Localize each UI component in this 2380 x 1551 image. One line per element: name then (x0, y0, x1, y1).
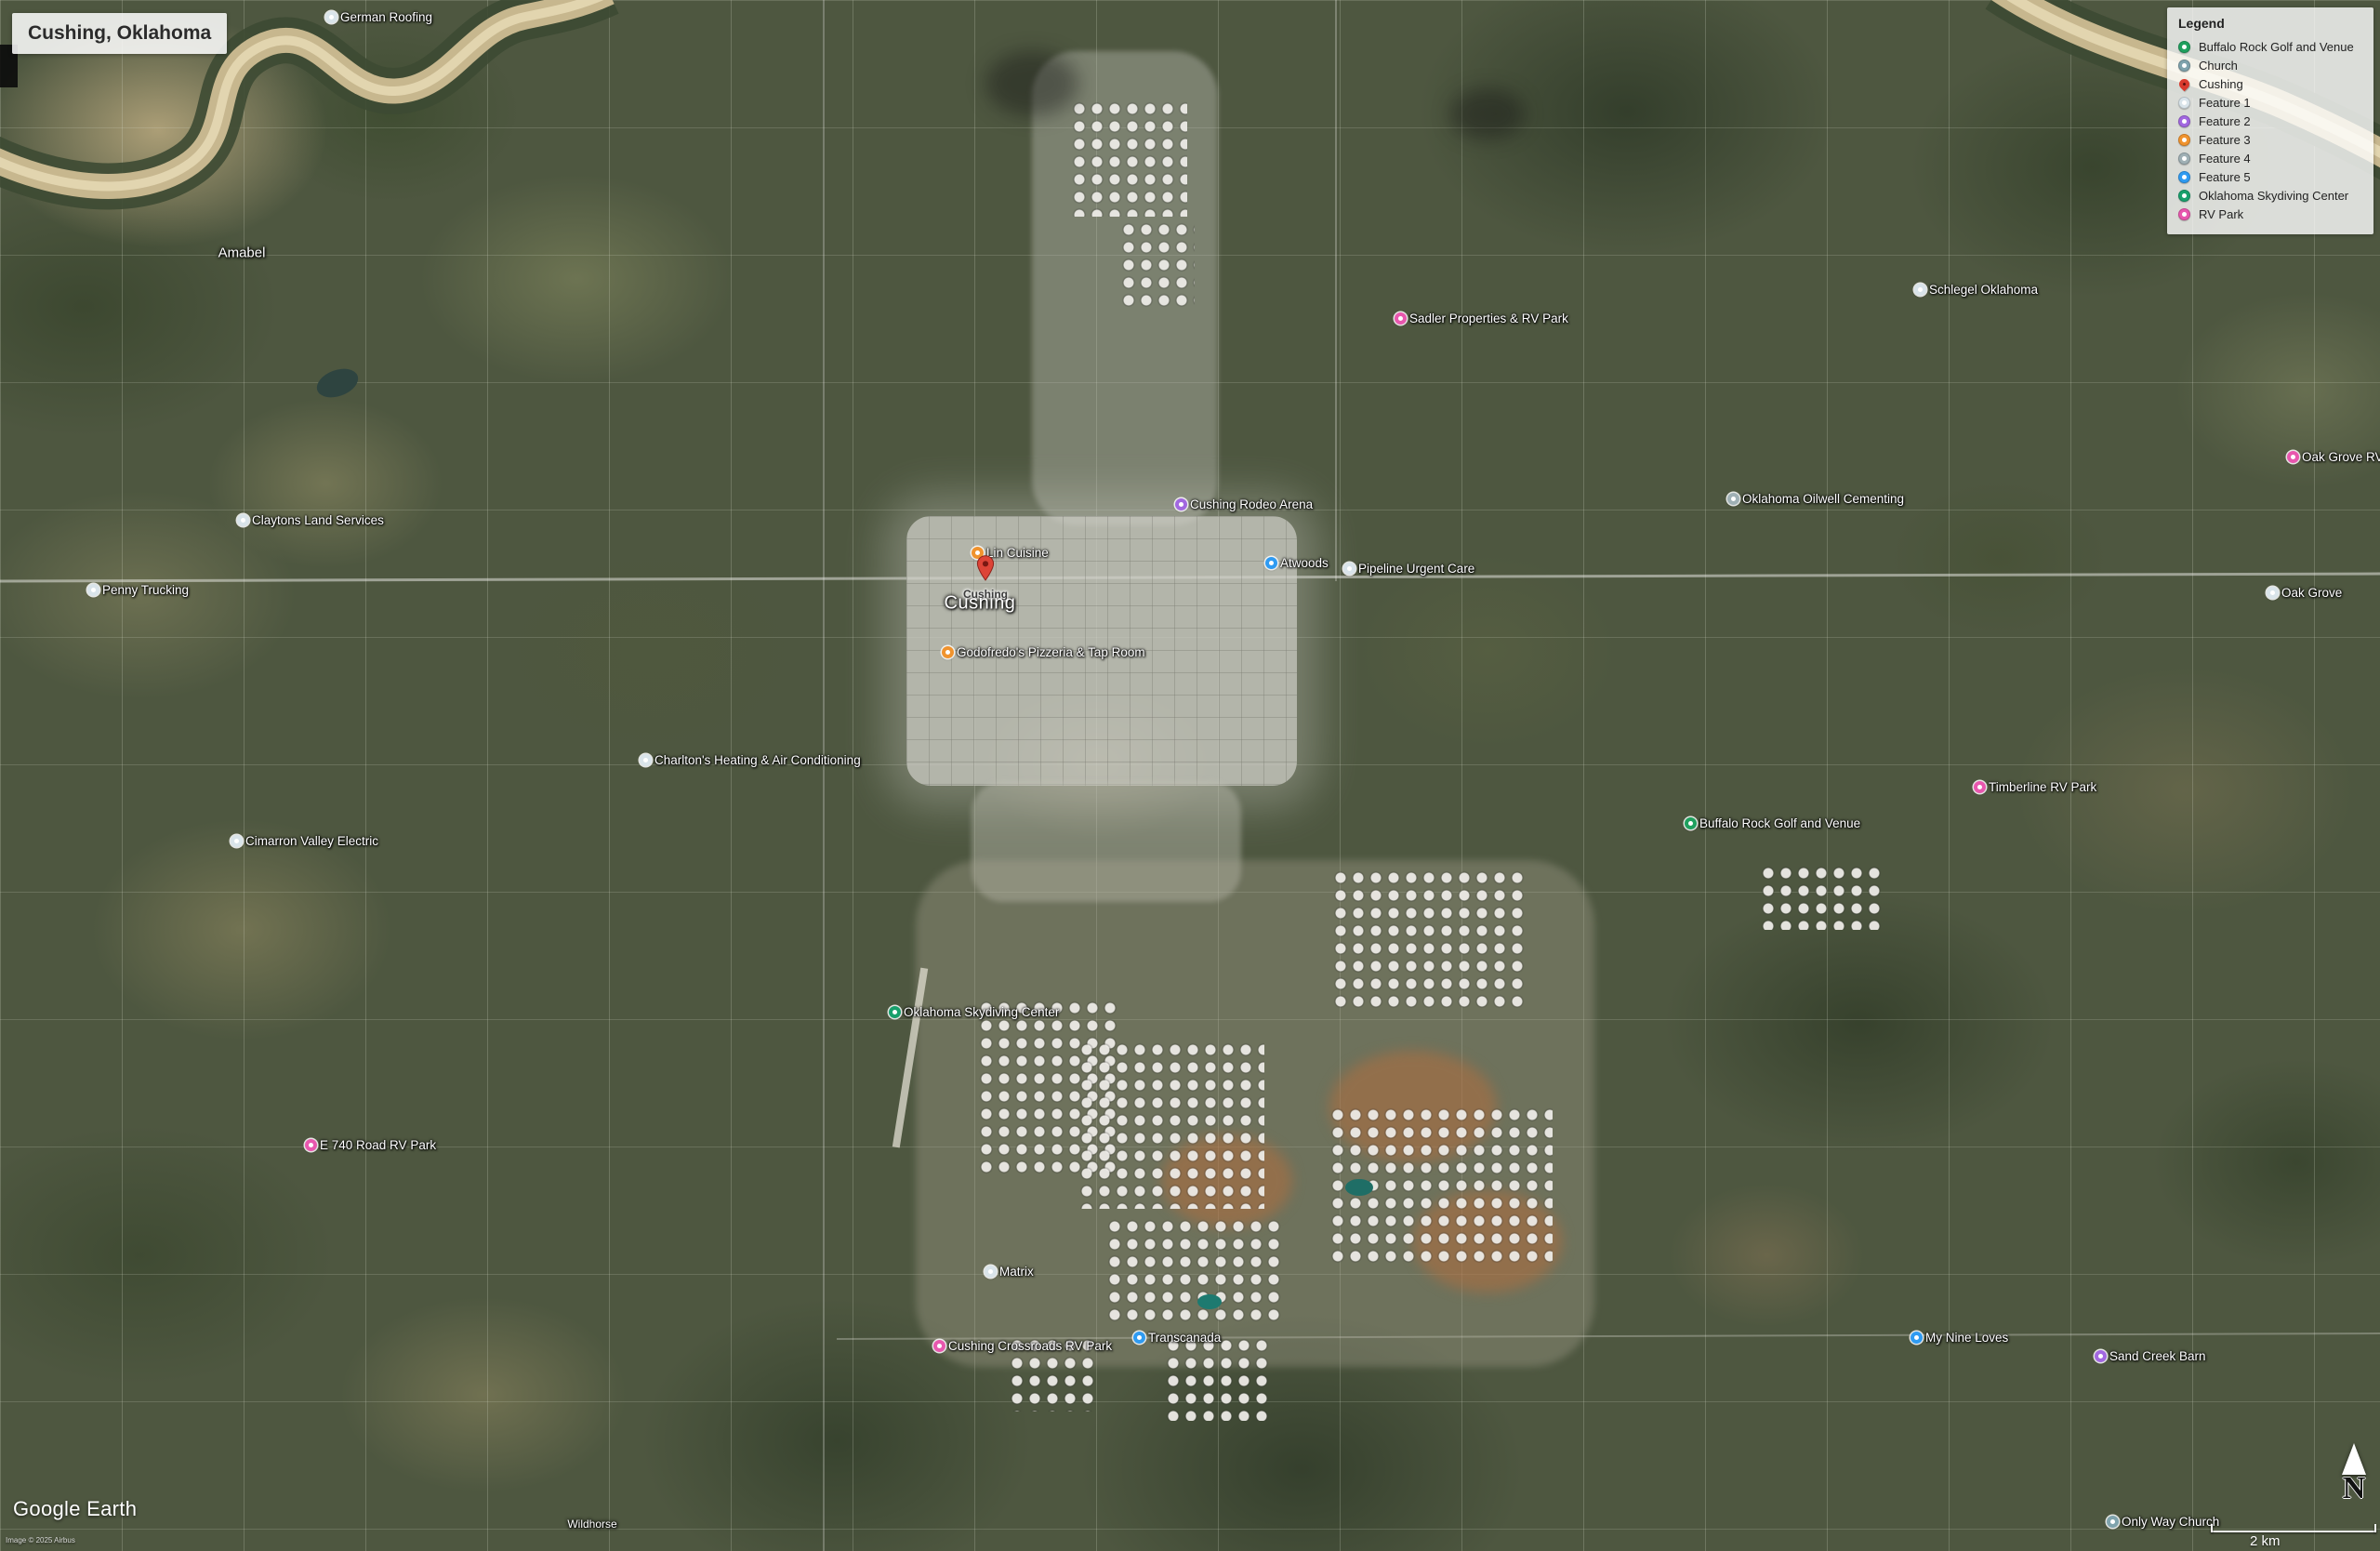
feature1-placemark-icon (1914, 284, 1926, 296)
marker-label: Cushing Crossroads RV Park (948, 1339, 1112, 1353)
marker-label: Pipeline Urgent Care (1358, 562, 1474, 576)
feature5-placemark-icon (1911, 1332, 1923, 1344)
marker-label: German Roofing (340, 10, 432, 24)
place-name-label: Wildhorse (567, 1518, 616, 1531)
compass-n-label: N (2334, 1475, 2374, 1504)
marker-label: Penny Trucking (102, 583, 189, 597)
legend-item: Oklahoma Skydiving Center (2178, 186, 2362, 205)
legend-item-label: Feature 1 (2199, 96, 2251, 110)
green2-placemark-icon (889, 1006, 901, 1018)
legend-item: Buffalo Rock Golf and Venue (2178, 37, 2362, 56)
map-marker[interactable]: Buffalo Rock Golf and Venue (1685, 816, 1860, 830)
legend-item: RV Park (2178, 205, 2362, 223)
marker-label: Cushing Rodeo Arena (1190, 497, 1313, 511)
cushing-pin[interactable] (977, 555, 995, 586)
feature1-placemark-icon (985, 1266, 997, 1278)
feature1-placemark-icon (231, 835, 243, 847)
feature1-placemark-icon (87, 584, 99, 596)
feature1-placemark-icon (2267, 587, 2279, 599)
legend-item-label: Feature 5 (2199, 170, 2251, 184)
legend-feature3-icon (2178, 134, 2190, 146)
legend-pin-icon (2177, 76, 2192, 91)
map-marker[interactable]: Sand Creek Barn (2095, 1349, 2206, 1363)
legend-item-label: Feature 4 (2199, 152, 2251, 166)
map-marker[interactable]: Matrix (985, 1265, 1034, 1279)
legend-feature5-icon (2178, 171, 2190, 183)
map-marker[interactable]: Cushing Rodeo Arena (1175, 497, 1313, 511)
legend-item: Feature 4 (2178, 149, 2362, 167)
google-earth-viewport[interactable]: German RoofingSadler Properties & RV Par… (0, 0, 2380, 1551)
rvpark-placemark-icon (1974, 781, 1986, 793)
map-marker[interactable]: Atwoods (1265, 556, 1329, 570)
legend-item-label: RV Park (2199, 207, 2243, 221)
legend-item: Feature 2 (2178, 112, 2362, 130)
marker-label: My Nine Loves (1925, 1331, 2008, 1345)
map-marker[interactable]: Sadler Properties & RV Park (1395, 312, 1568, 325)
feature1-placemark-icon (237, 514, 249, 526)
map-title-box: Cushing, Oklahoma (12, 13, 227, 54)
legend-item: Church (2178, 56, 2362, 74)
place-name-label: Amabel (218, 245, 266, 261)
map-marker[interactable]: E 740 Road RV Park (305, 1138, 436, 1152)
feature5-placemark-icon (1133, 1332, 1145, 1344)
scale-bar: 2 km (2211, 1523, 2376, 1549)
legend-item-label: Cushing (2199, 77, 2243, 91)
map-marker[interactable]: Timberline RV Park (1974, 780, 2096, 794)
marker-label: Oak Grove RV Pa (2302, 450, 2380, 464)
legend-item-label: Feature 3 (2199, 133, 2251, 147)
imagery-attribution: Image © 2025 Airbus (6, 1536, 75, 1544)
north-arrow-icon (2342, 1443, 2366, 1475)
map-marker[interactable]: My Nine Loves (1911, 1331, 2008, 1345)
legend-item-label: Church (2199, 59, 2238, 73)
green-placemark-icon (1685, 817, 1697, 829)
legend-panel: Legend Buffalo Rock Golf and VenueChurch… (2167, 7, 2373, 234)
marker-label: Oklahoma Oilwell Cementing (1742, 492, 1904, 506)
marker-label: Cimarron Valley Electric (245, 834, 378, 848)
map-marker[interactable]: Oklahoma Oilwell Cementing (1727, 492, 1904, 506)
map-marker[interactable]: Oak Grove RV Pa (2287, 450, 2380, 464)
map-marker[interactable]: Schlegel Oklahoma (1914, 283, 2038, 297)
legend-church-icon (2178, 60, 2190, 72)
compass[interactable]: N (2334, 1443, 2374, 1504)
marker-label: Godofredo's Pizzeria & Tap Room (957, 645, 1145, 659)
map-marker[interactable]: Only Way Church (2107, 1515, 2219, 1529)
legend-green2-icon (2178, 190, 2190, 202)
map-marker[interactable]: Oak Grove (2267, 586, 2342, 600)
legend-title: Legend (2178, 16, 2362, 31)
map-marker[interactable]: Oklahoma Skydiving Center (889, 1005, 1059, 1019)
legend-item: Feature 3 (2178, 130, 2362, 149)
legend-feature2-icon (2178, 115, 2190, 127)
marker-label: Claytons Land Services (252, 513, 384, 527)
legend-green-icon (2178, 41, 2190, 53)
feature4-placemark-icon (1727, 493, 1739, 505)
map-marker[interactable]: Claytons Land Services (237, 513, 384, 527)
rvpark-placemark-icon (933, 1340, 945, 1352)
feature2-placemark-icon (2095, 1350, 2107, 1362)
map-marker[interactable]: Transcanada (1133, 1331, 1221, 1345)
rvpark-placemark-icon (2287, 451, 2299, 463)
marker-label: Oak Grove (2281, 586, 2342, 600)
feature5-placemark-icon (1265, 557, 1277, 569)
map-marker[interactable]: Cimarron Valley Electric (231, 834, 378, 848)
marker-label: Buffalo Rock Golf and Venue (1699, 816, 1860, 830)
marker-label: Oklahoma Skydiving Center (904, 1005, 1059, 1019)
rvpark-placemark-icon (1395, 312, 1407, 325)
legend-item: Cushing (2178, 74, 2362, 93)
marker-label: Timberline RV Park (1989, 780, 2096, 794)
legend-rvpark-icon (2178, 208, 2190, 220)
marker-label: Transcanada (1148, 1331, 1221, 1345)
map-marker[interactable]: Charlton's Heating & Air Conditioning (640, 753, 861, 767)
feature1-placemark-icon (325, 11, 337, 23)
google-earth-logo: Google Earth (13, 1497, 137, 1521)
marker-label: Charlton's Heating & Air Conditioning (654, 753, 861, 767)
rvpark-placemark-icon (305, 1139, 317, 1151)
marker-label: Matrix (999, 1265, 1034, 1279)
legend-item: Feature 5 (2178, 167, 2362, 186)
legend-list: Buffalo Rock Golf and VenueChurchCushing… (2178, 37, 2362, 223)
marker-label: E 740 Road RV Park (320, 1138, 436, 1152)
feature1-placemark-icon (640, 754, 652, 766)
map-marker[interactable]: Cushing Crossroads RV Park (933, 1339, 1112, 1353)
marker-label: Only Way Church (2122, 1515, 2219, 1529)
marker-label: Schlegel Oklahoma (1929, 283, 2038, 297)
marker-label: Sand Creek Barn (2109, 1349, 2206, 1363)
marker-label: Lin Cuisine (986, 546, 1049, 560)
scale-bar-line (2211, 1531, 2376, 1532)
marker-label: Atwoods (1280, 556, 1329, 570)
feature2-placemark-icon (1175, 498, 1187, 510)
map-marker[interactable]: Godofredo's Pizzeria & Tap Room (942, 645, 1145, 659)
legend-item-label: Oklahoma Skydiving Center (2199, 189, 2348, 203)
legend-feature4-icon (2178, 152, 2190, 165)
legend-item-label: Buffalo Rock Golf and Venue (2199, 40, 2354, 54)
feature3-placemark-icon (942, 646, 954, 658)
placemarks-layer: German RoofingSadler Properties & RV Par… (0, 0, 2380, 1551)
feature1-placemark-icon (1343, 563, 1355, 575)
red-pin-icon (977, 555, 995, 581)
scale-bar-label: 2 km (2250, 1533, 2281, 1549)
pin-label: Cushing (963, 588, 1008, 601)
legend-item-label: Feature 2 (2199, 114, 2251, 128)
church-placemark-icon (2107, 1516, 2119, 1528)
map-marker[interactable]: Penny Trucking (87, 583, 189, 597)
legend-feature1-icon (2178, 97, 2190, 109)
map-marker[interactable]: Pipeline Urgent Care (1343, 562, 1474, 576)
map-marker[interactable]: German Roofing (325, 10, 432, 24)
marker-label: Sadler Properties & RV Park (1409, 312, 1568, 325)
legend-item: Feature 1 (2178, 93, 2362, 112)
